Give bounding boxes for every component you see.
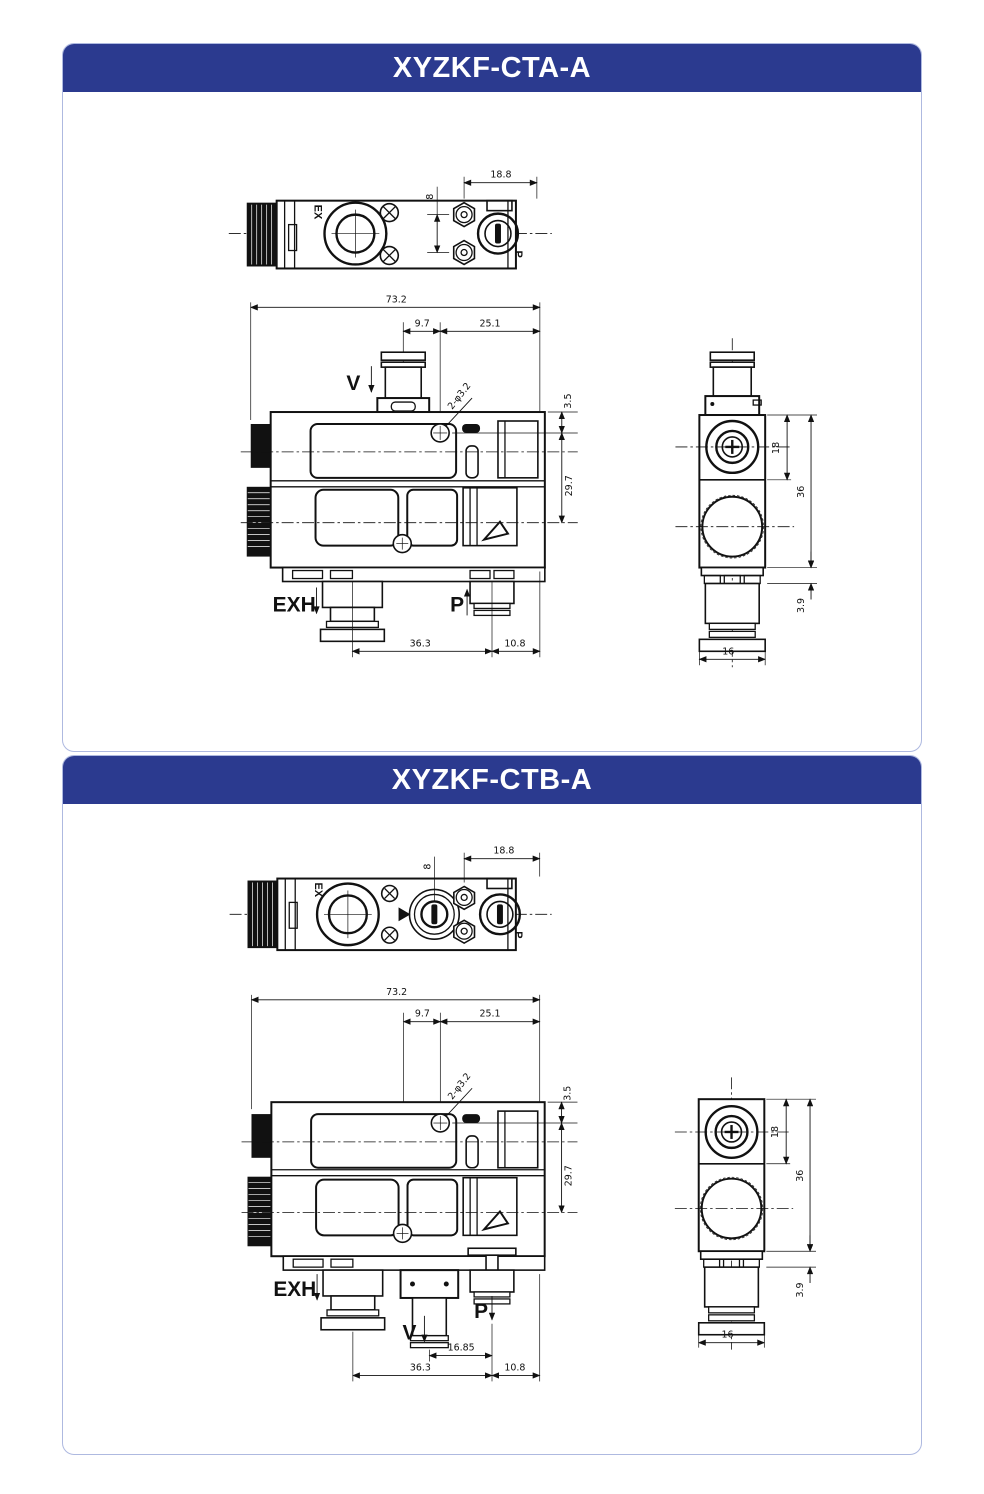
dim-hole: 2-φ3.2	[446, 381, 474, 412]
exh-connector	[321, 1270, 385, 1330]
dim-29-7: 29.7	[564, 1165, 575, 1186]
panel-b-title: XYZKF-CTB-A	[392, 764, 592, 797]
dim-25-1: 25.1	[480, 1009, 501, 1020]
dim-36-3: 36.3	[410, 1363, 431, 1374]
panel-b-drawing: EX	[63, 804, 921, 1452]
label-v: V	[403, 1322, 417, 1345]
dim-16: 16	[722, 646, 734, 657]
dim-8: 8	[422, 864, 433, 870]
panel-a-drawing: EX	[63, 92, 921, 751]
dim-10-8: 10.8	[504, 1363, 525, 1374]
dim-36: 36	[795, 1170, 806, 1182]
dim-29-7: 29.7	[564, 475, 575, 496]
dim-3-9: 3.9	[796, 598, 807, 613]
label-v: V	[346, 372, 360, 395]
dim-36-3: 36.3	[410, 638, 431, 649]
dim-16: 16	[722, 1330, 734, 1341]
dim-8: 8	[425, 194, 436, 200]
label-p: P	[474, 1300, 488, 1323]
label-exh: EXH	[273, 1278, 316, 1301]
panel-b-front-view: 73.2 9.7 25.1	[242, 987, 578, 1382]
panel-a-title: XYZKF-CTA-A	[393, 52, 591, 85]
panel-a-top-view: EX	[229, 170, 552, 269]
dim-18: 18	[771, 442, 782, 454]
panel-a-front-view: 73.2 9.7 25.1 V	[241, 294, 578, 657]
label-exh: EXH	[273, 593, 316, 616]
dim-3-5: 3.5	[563, 394, 574, 409]
label-p: P	[450, 593, 464, 616]
side-bottom-connector	[699, 1267, 765, 1335]
dim-18-8: 18.8	[493, 846, 514, 857]
dim-hole: 2-φ3.2	[446, 1071, 474, 1102]
dim-3-5: 3.5	[563, 1086, 574, 1101]
dim-18-8: 18.8	[490, 170, 511, 181]
panel-a-header: XYZKF-CTA-A	[63, 44, 921, 92]
panel-b-header: XYZKF-CTB-A	[63, 756, 921, 804]
panel-b-top-view: EX	[230, 846, 552, 950]
panel-a-card: XYZKF-CTA-A	[62, 43, 922, 752]
page: { "page": { "background": "#ffffff", "ca…	[0, 0, 984, 1494]
side-bottom-connector	[699, 584, 765, 652]
dim-10-8: 10.8	[504, 638, 525, 649]
dim-3-9: 3.9	[795, 1282, 806, 1297]
dim-9-7: 9.7	[415, 318, 430, 329]
dim-73-2: 73.2	[386, 294, 407, 305]
dim-25-1: 25.1	[479, 318, 500, 329]
panel-b-side-view: 18 36 3.9 16	[675, 1077, 816, 1349]
dim-9-7: 9.7	[415, 1009, 430, 1020]
panel-a-side-view: 18 36 3.9 16	[675, 338, 817, 667]
dim-36: 36	[796, 486, 807, 498]
dim-18: 18	[770, 1126, 781, 1138]
label-p-top: P	[512, 931, 524, 938]
dim-73-2: 73.2	[386, 987, 407, 998]
label-ex: EX	[312, 205, 324, 220]
label-p-top: P	[512, 251, 524, 258]
side-top-connector	[705, 352, 761, 415]
dim-16-85: 16.85	[448, 1343, 475, 1354]
panel-b-card: XYZKF-CTB-A	[62, 755, 922, 1455]
